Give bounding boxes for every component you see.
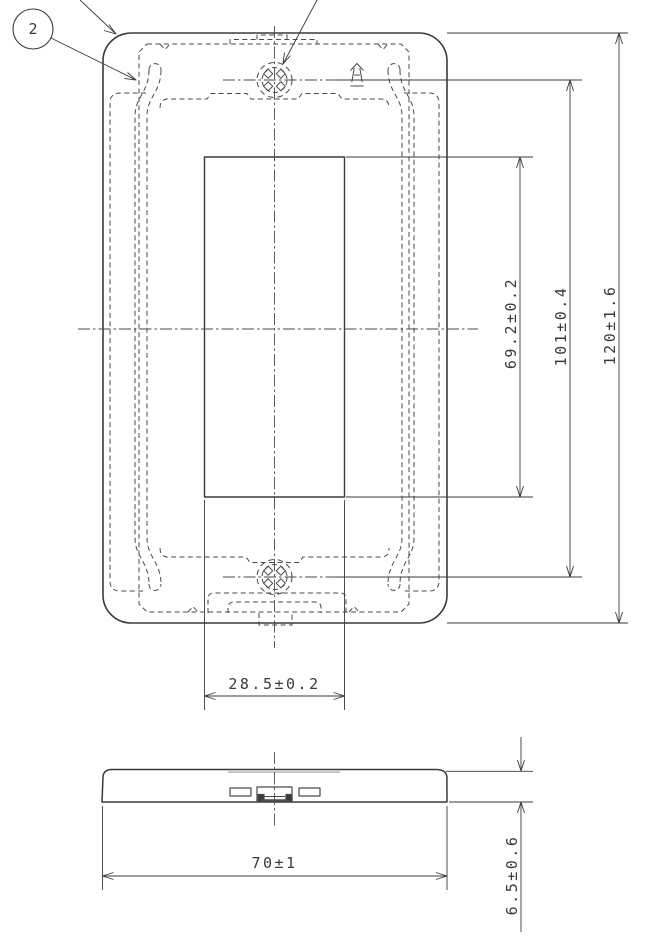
mounting-tabs [230, 787, 320, 802]
drawing-canvas: 2 28.5±0.2 69.2±0.2 101±0.4 120±1.6 70±1… [0, 0, 650, 938]
dim-plate-thickness-label: 6.5±0.6 [503, 835, 521, 916]
dim-plate-height-label: 120±1.6 [601, 285, 619, 366]
dim-window-width-label: 28.5±0.2 [228, 675, 320, 693]
inner-frame-dashed [139, 44, 409, 612]
dim-plate-width-label: 70±1 [251, 854, 297, 872]
dim-screw-pitch [335, 80, 582, 577]
dim-screw-pitch-label: 101±0.4 [552, 286, 570, 367]
orientation-up-mark-icon [351, 64, 364, 87]
dim-window-height-label: 69.2±0.2 [502, 277, 520, 369]
technical-drawing-sheet: 2 28.5±0.2 69.2±0.2 101±0.4 120±1.6 70±1… [0, 0, 650, 938]
front-view [13, 0, 628, 710]
centerlines [78, 26, 478, 648]
leader-to-screw [283, 0, 317, 64]
leader-from-balloon [51, 38, 136, 80]
plate-outline [103, 33, 447, 623]
balloon-label: 2 [28, 20, 37, 38]
side-view [102, 737, 533, 932]
leader-to-corner [80, 0, 116, 34]
